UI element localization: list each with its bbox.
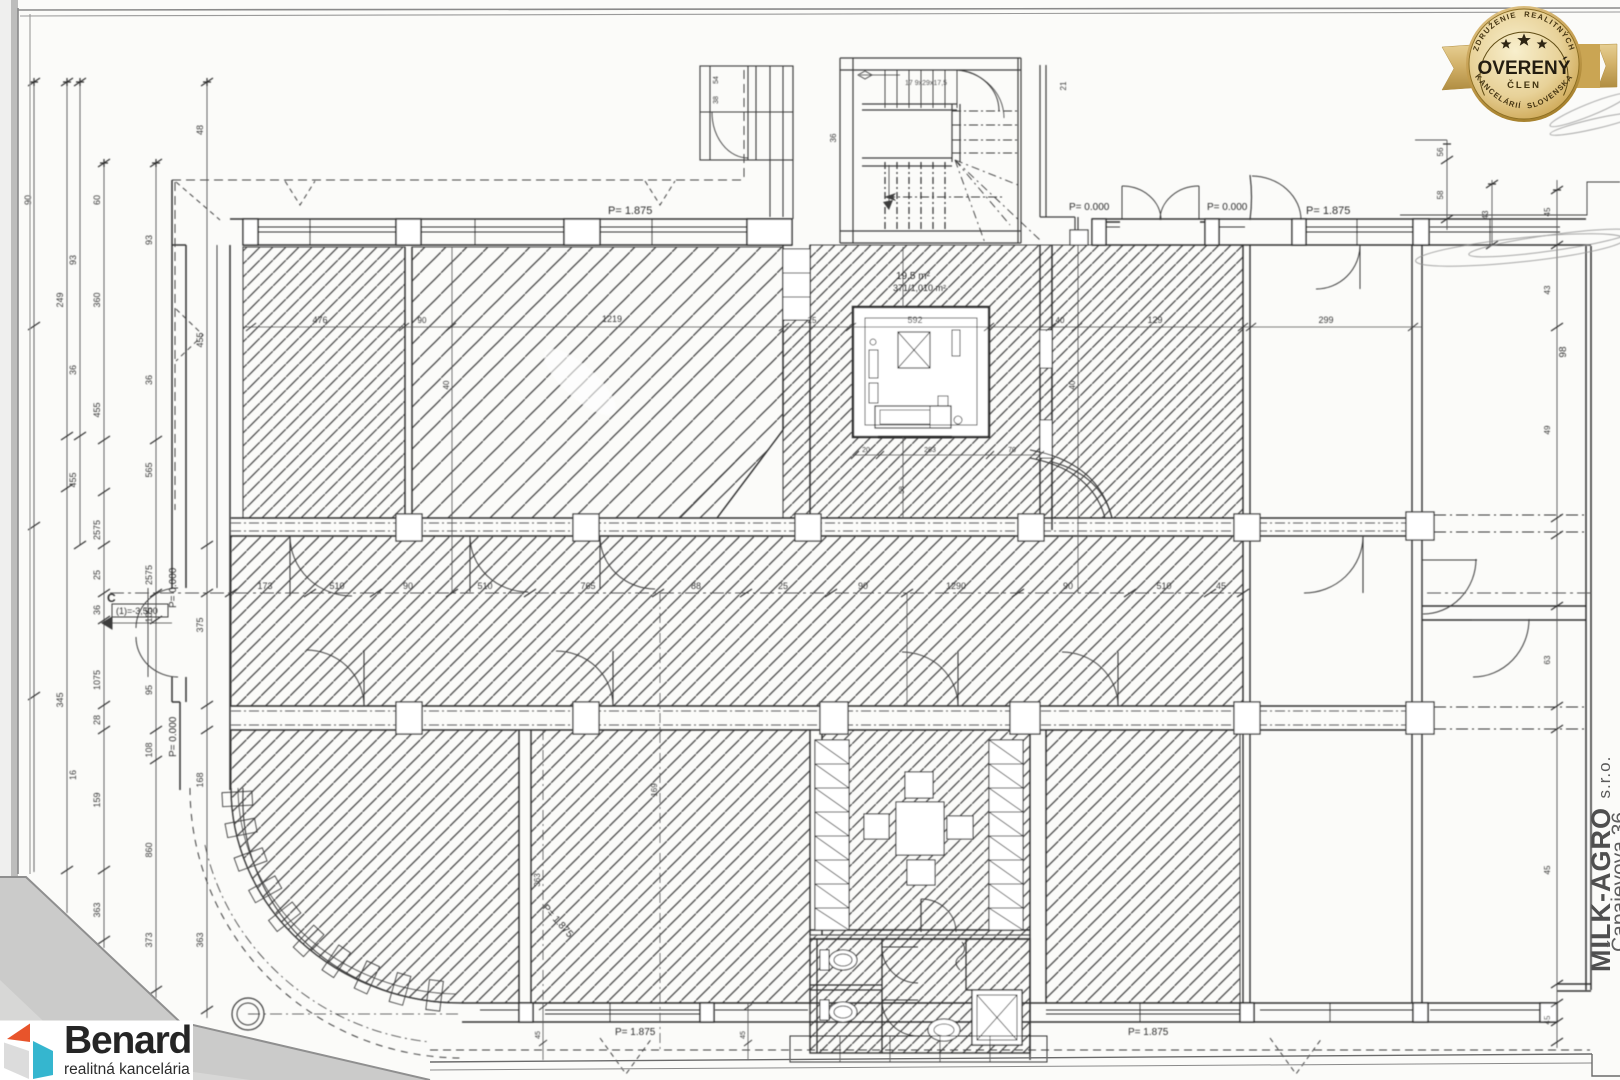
svg-text:C: C [107, 591, 116, 605]
svg-text:363: 363 [92, 902, 102, 917]
svg-text:OVERENÝ: OVERENÝ [1478, 57, 1571, 79]
svg-text:45: 45 [1543, 1015, 1552, 1024]
svg-text:(1)=-3,500: (1)=-3,500 [116, 606, 158, 616]
svg-text:19,5 m²: 19,5 m² [896, 271, 931, 282]
svg-text:realitná kancelária: realitná kancelária [64, 1061, 190, 1078]
svg-text:ČLEN: ČLEN [1507, 79, 1541, 91]
svg-text:28: 28 [92, 715, 102, 725]
svg-text:P= 1.875: P= 1.875 [1128, 1027, 1169, 1038]
svg-text:60: 60 [92, 195, 102, 205]
svg-text:169: 169 [650, 783, 659, 797]
svg-text:93: 93 [144, 235, 154, 245]
svg-text:2575: 2575 [144, 565, 154, 585]
svg-text:25: 25 [808, 316, 817, 325]
svg-text:345: 345 [55, 692, 65, 707]
svg-text:765: 765 [580, 581, 595, 591]
svg-text:360: 360 [92, 292, 102, 307]
svg-text:25: 25 [92, 570, 102, 580]
svg-text:40: 40 [442, 380, 451, 389]
svg-text:36: 36 [144, 375, 154, 385]
svg-text:P= 0.000: P= 0.000 [168, 716, 179, 757]
svg-text:16: 16 [68, 770, 78, 780]
svg-text:90: 90 [418, 316, 427, 325]
svg-text:36: 36 [92, 605, 102, 615]
svg-text:860: 860 [144, 842, 154, 857]
svg-text:1219: 1219 [602, 314, 622, 324]
svg-text:168: 168 [195, 772, 205, 787]
svg-text:Čapajevova 36: Čapajevova 36 [1608, 812, 1620, 952]
svg-text:371/1,010 m²: 371/1,010 m² [893, 283, 946, 293]
svg-text:173: 173 [257, 581, 272, 591]
svg-text:38: 38 [713, 96, 720, 104]
svg-text:21: 21 [1059, 81, 1068, 90]
svg-text:43: 43 [1543, 285, 1552, 294]
svg-text:249: 249 [55, 292, 65, 307]
svg-text:299: 299 [1318, 315, 1333, 325]
svg-text:45: 45 [1216, 581, 1226, 591]
svg-text:70: 70 [1008, 447, 1016, 454]
svg-text:48: 48 [195, 125, 205, 135]
svg-text:49: 49 [1543, 425, 1552, 434]
svg-text:2575: 2575 [92, 520, 102, 540]
svg-text:363: 363 [195, 932, 205, 947]
svg-text:20: 20 [862, 447, 870, 454]
svg-text:565: 565 [144, 462, 154, 477]
svg-text:40: 40 [1056, 316, 1065, 325]
svg-text:90: 90 [858, 581, 868, 591]
svg-text:510: 510 [477, 581, 492, 591]
svg-text:45: 45 [1543, 865, 1552, 874]
svg-text:592: 592 [907, 315, 922, 325]
svg-text:90: 90 [403, 581, 413, 591]
svg-text:1290: 1290 [946, 581, 966, 591]
svg-text:95: 95 [144, 685, 154, 695]
svg-text:25: 25 [778, 581, 788, 591]
svg-text:Benard: Benard [64, 1019, 191, 1062]
svg-text:43: 43 [1481, 210, 1490, 219]
svg-text:40: 40 [1068, 380, 1077, 389]
svg-text:36: 36 [68, 365, 78, 375]
svg-text:98: 98 [1558, 346, 1569, 358]
svg-text:45: 45 [535, 1031, 542, 1039]
svg-text:129: 129 [1147, 315, 1162, 325]
svg-text:P= 1.875: P= 1.875 [615, 1027, 656, 1038]
svg-text:90: 90 [23, 195, 33, 205]
svg-text:90: 90 [1063, 581, 1073, 591]
svg-text:63: 63 [1543, 655, 1552, 664]
svg-text:58: 58 [1436, 190, 1445, 199]
svg-text:P= 0.000: P= 0.000 [1069, 202, 1110, 213]
svg-text:375: 375 [195, 617, 205, 632]
svg-text:P= 0.000: P= 0.000 [168, 567, 179, 608]
svg-text:93: 93 [68, 255, 78, 265]
svg-text:476: 476 [312, 315, 327, 325]
svg-text:363: 363 [533, 873, 542, 887]
svg-text:159: 159 [92, 792, 102, 807]
svg-text:283: 283 [924, 447, 936, 454]
svg-text:455: 455 [195, 332, 205, 347]
svg-text:P= 0.000: P= 0.000 [1207, 202, 1248, 213]
svg-text:373: 373 [144, 932, 154, 947]
svg-text:56: 56 [1436, 147, 1445, 156]
svg-text:108: 108 [144, 742, 154, 757]
svg-text:P= 1.875: P= 1.875 [1306, 205, 1350, 217]
svg-text:54: 54 [713, 76, 720, 84]
svg-text:58: 58 [899, 486, 906, 494]
svg-text:510: 510 [329, 581, 344, 591]
svg-text:455: 455 [68, 472, 78, 487]
svg-text:36: 36 [829, 133, 838, 142]
svg-text:88: 88 [691, 581, 701, 591]
svg-text:17 9x29x17,5: 17 9x29x17,5 [905, 80, 947, 87]
svg-text:455: 455 [92, 402, 102, 417]
svg-text:45: 45 [740, 1031, 747, 1039]
svg-text:1075: 1075 [92, 670, 102, 690]
svg-text:P= 1.875: P= 1.875 [608, 205, 652, 217]
svg-text:45: 45 [1543, 207, 1552, 216]
svg-text:510: 510 [1156, 581, 1171, 591]
